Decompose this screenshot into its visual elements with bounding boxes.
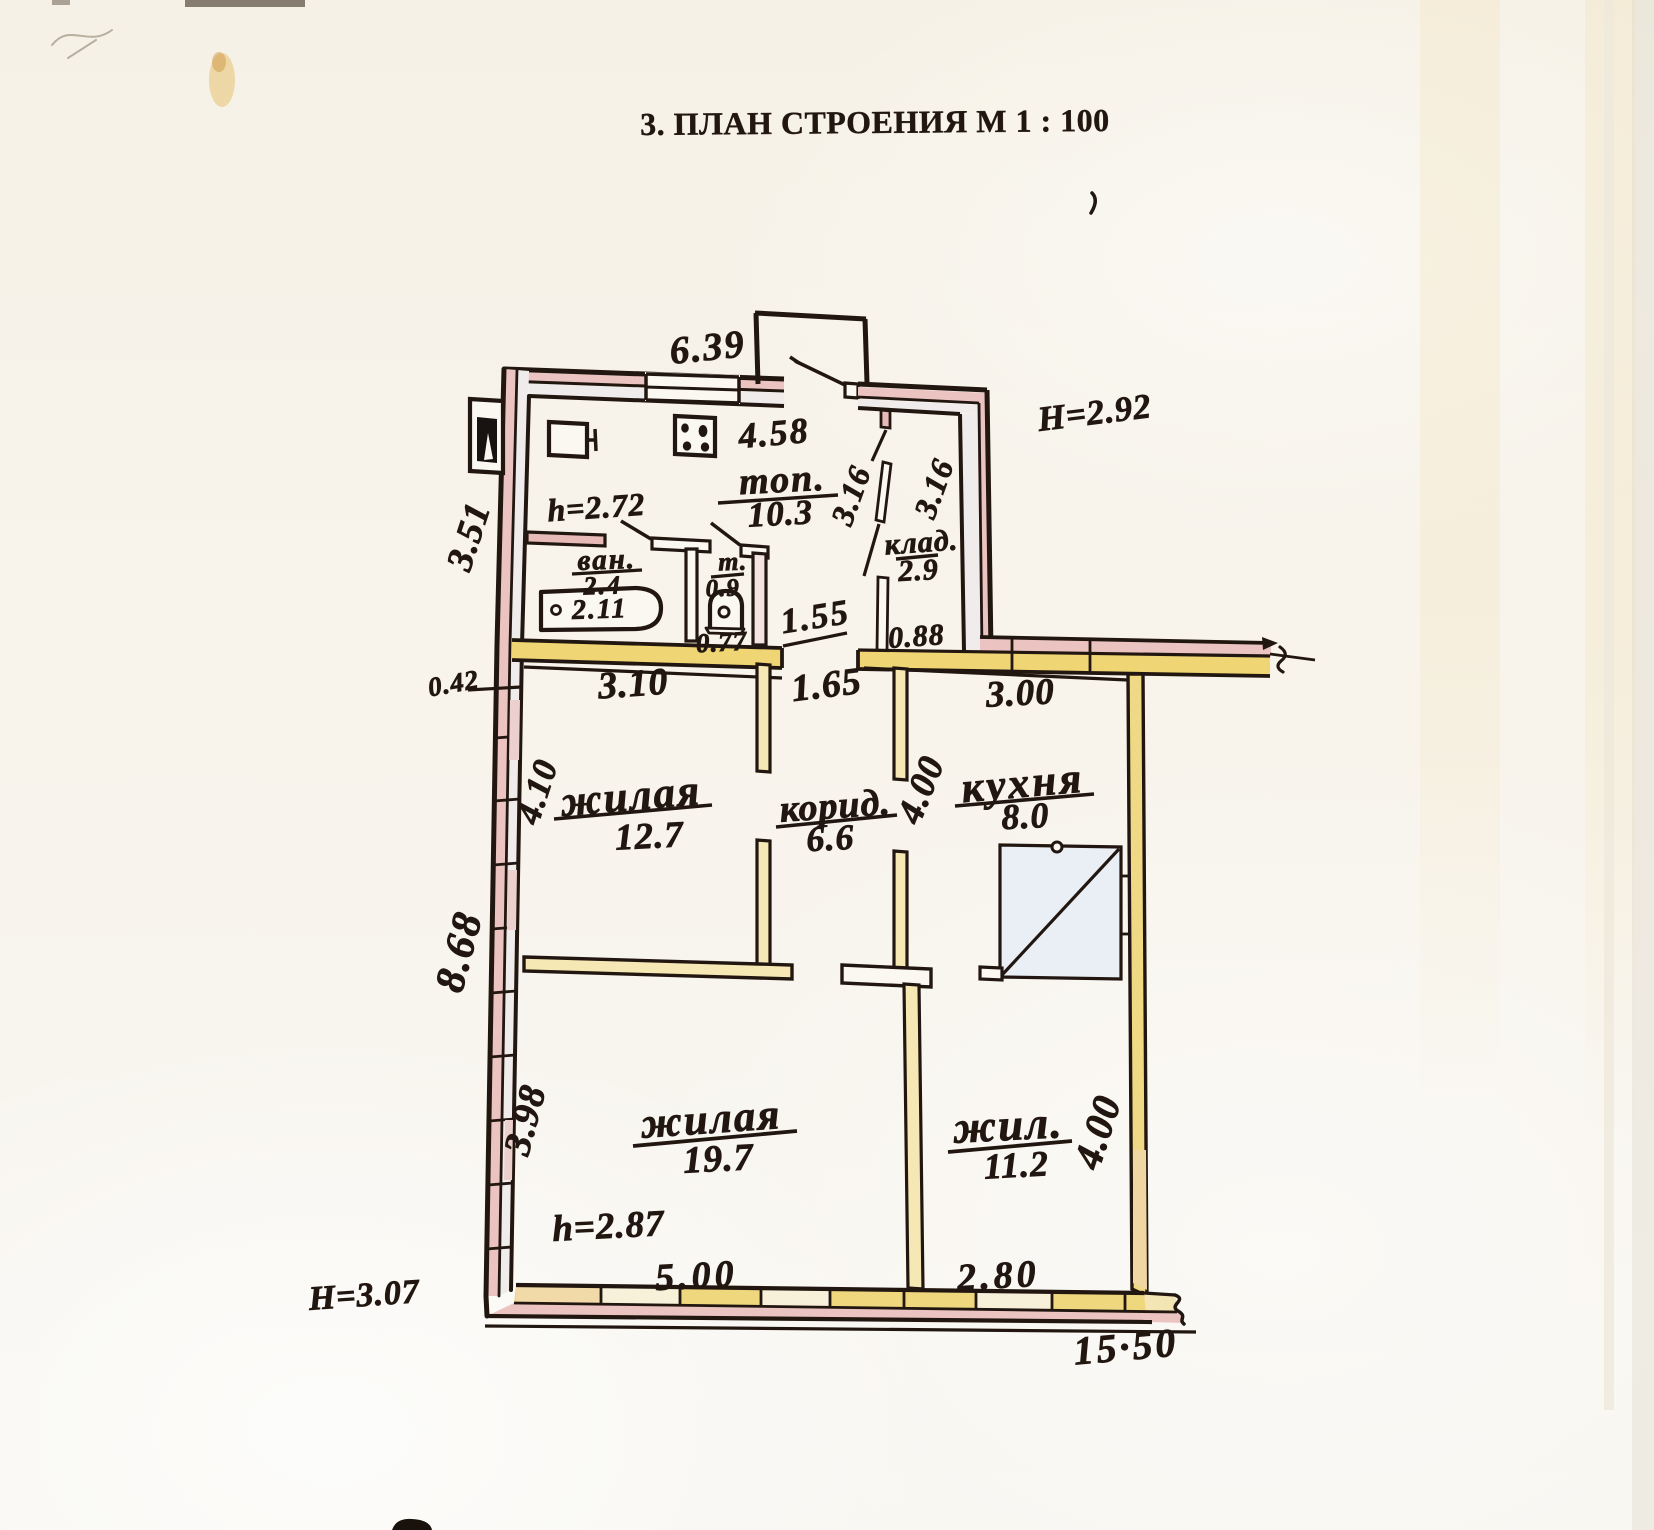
svg-text:0.9: 0.9 <box>705 574 740 602</box>
svg-text:H=3.07: H=3.07 <box>306 1273 422 1318</box>
svg-text:2.80: 2.80 <box>955 1253 1041 1299</box>
svg-text:3.10: 3.10 <box>596 661 670 708</box>
svg-text:0.77: 0.77 <box>695 626 748 659</box>
svg-text:11.2: 11.2 <box>983 1143 1050 1186</box>
svg-text:12.7: 12.7 <box>614 814 685 859</box>
svg-text:2.9: 2.9 <box>896 553 939 588</box>
svg-text:6.39: 6.39 <box>668 322 748 373</box>
svg-text:5.00: 5.00 <box>654 1253 739 1299</box>
svg-text:3.00: 3.00 <box>984 671 1056 716</box>
svg-text:0.88: 0.88 <box>887 618 946 655</box>
svg-text:4.58: 4.58 <box>736 410 811 456</box>
svg-text:1.65: 1.65 <box>789 660 864 710</box>
svg-text:10.3: 10.3 <box>747 492 814 534</box>
svg-text:h=2.87: h=2.87 <box>551 1203 666 1250</box>
svg-text:15·50: 15·50 <box>1072 1320 1181 1374</box>
svg-text:h=2.72: h=2.72 <box>546 486 646 529</box>
svg-text:8.0: 8.0 <box>1000 795 1050 837</box>
svg-text:6.6: 6.6 <box>805 817 855 859</box>
svg-text:3. ПЛАН СТРОЕНИЯ М 1 : 100: 3. ПЛАН СТРОЕНИЯ М 1 : 100 <box>640 102 1110 142</box>
svg-text:19.7: 19.7 <box>682 1136 756 1182</box>
svg-text:2.11: 2.11 <box>570 593 628 626</box>
svg-text:т.: т. <box>718 547 748 577</box>
